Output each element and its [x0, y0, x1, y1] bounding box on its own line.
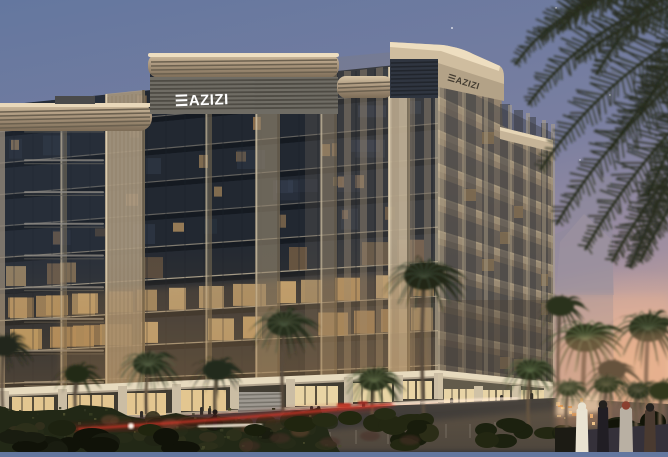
svg-text:☰AZIZI: ☰AZIZI	[175, 91, 230, 110]
